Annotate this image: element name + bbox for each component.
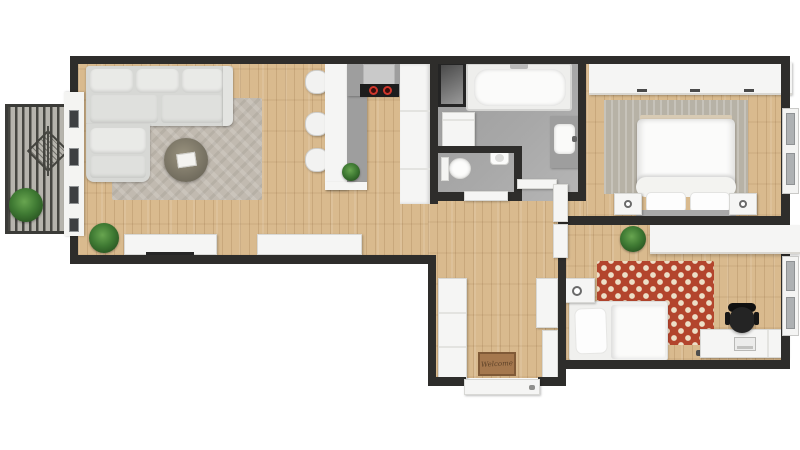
- burner: [369, 86, 378, 95]
- wall-wc-top: [438, 146, 522, 153]
- welcome-doormat: Welcome: [478, 352, 516, 376]
- bedroom2-plant: [620, 226, 646, 252]
- single-bed-duvet: [611, 305, 665, 359]
- desk-drawer-line: [767, 330, 769, 357]
- wc-door-leaf: [464, 191, 508, 201]
- window-pane: [786, 261, 795, 291]
- nightstand-lamp: [572, 286, 582, 296]
- living-room-plant: [89, 223, 119, 253]
- wall-wc-right: [514, 146, 522, 201]
- desk: [700, 329, 788, 358]
- island-plant: [342, 163, 360, 181]
- wall-hall-left: [428, 255, 436, 386]
- balcony-door-glass: [69, 110, 79, 128]
- bedroom2-nightstand: [565, 278, 595, 303]
- doormat-text: Welcome: [481, 359, 513, 369]
- kitchen-island-cap: [325, 182, 367, 190]
- laptop: [734, 337, 756, 351]
- balcony-plant: [9, 188, 43, 222]
- sofa-back-cushion: [90, 69, 133, 93]
- kitchen-tall-cabinets: [400, 64, 430, 204]
- master-nightstand-right: [729, 193, 757, 215]
- wall-bath-bottom-a: [430, 192, 466, 201]
- bedroom2-door-leaf: [553, 224, 568, 258]
- burner: [383, 86, 392, 95]
- sink-faucet: [572, 136, 577, 142]
- shower-cabinet: [438, 62, 466, 107]
- drying-rack-pole: [47, 126, 49, 176]
- wall-living-bottom: [70, 255, 436, 264]
- hallway-wardrobe: [438, 278, 467, 380]
- chair-armrest: [725, 312, 730, 325]
- master-bedroom-window: [782, 108, 799, 194]
- balcony-door-glass: [69, 218, 79, 232]
- nightstand-knob: [739, 200, 747, 208]
- balcony-door-glass: [69, 148, 79, 166]
- bathtub: [466, 63, 572, 111]
- chair-seat: [729, 307, 755, 333]
- master-nightstand-left: [614, 193, 642, 215]
- washing-machine: [442, 112, 475, 148]
- double-bed: [636, 115, 736, 216]
- wardrobe-divider: [439, 312, 466, 314]
- corner-sofa: [86, 66, 233, 182]
- wall-bath-right: [578, 56, 586, 201]
- master-bedroom-door-leaf: [553, 184, 568, 222]
- wall-kitchen-bath: [430, 56, 438, 204]
- cabinet-divider: [400, 168, 430, 170]
- cabinet-divider: [400, 110, 430, 112]
- coffee-table-tray: [176, 152, 197, 169]
- coffee-table: [164, 138, 208, 182]
- bedroom2-window: [782, 256, 799, 336]
- sofa-seat-cushion: [161, 95, 223, 123]
- sofa-back-cushion: [136, 69, 179, 93]
- balcony-door-frame: [64, 92, 84, 236]
- entrance-door-handle: [529, 385, 535, 390]
- office-chair: [727, 303, 757, 333]
- wall-hall-bedrooms: [558, 258, 566, 386]
- wardrobe-handle: [744, 89, 754, 92]
- wardrobe-divider: [439, 346, 466, 348]
- bedroom2-wardrobe: [650, 225, 800, 254]
- wardrobe-handle: [637, 89, 647, 92]
- entrance-door-leaf: [464, 379, 540, 395]
- bathroom-door-leaf: [517, 179, 557, 189]
- balcony-door-glass: [69, 186, 79, 204]
- chaise-cushion: [90, 128, 146, 154]
- cooktop: [360, 84, 399, 97]
- wall-hall-bottom-left: [428, 377, 466, 386]
- master-wardrobe: [589, 62, 792, 95]
- single-bed: [569, 301, 668, 361]
- bathtub-basin: [474, 69, 566, 106]
- wardrobe-handle: [690, 89, 700, 92]
- hallway-cabinet-upper: [536, 278, 558, 328]
- chaise-cushion: [90, 156, 146, 178]
- wall-bedroom2-bottom: [558, 360, 790, 369]
- wall-bedroom-divider: [558, 216, 790, 225]
- laptop-keyboard: [737, 346, 753, 349]
- washer-lid-line: [443, 119, 474, 121]
- sofa-armrest: [223, 66, 233, 126]
- chair-armrest: [754, 312, 759, 325]
- sideboard: [257, 234, 362, 255]
- nightstand-knob: [624, 200, 632, 208]
- hallway-cabinet-lower: [542, 330, 558, 378]
- window-pane: [786, 153, 795, 185]
- sofa-back-cushion: [182, 69, 223, 93]
- toilet-tank: [441, 157, 449, 181]
- sofa-seat-cushion: [90, 95, 158, 123]
- window-pane: [786, 297, 795, 329]
- floor-plan: Welcome: [0, 0, 800, 450]
- single-bed-pillow: [574, 307, 608, 354]
- window-pane: [786, 113, 795, 145]
- range-hood: [363, 64, 395, 86]
- basin-bowl: [495, 154, 504, 162]
- toilet-bowl: [449, 158, 471, 179]
